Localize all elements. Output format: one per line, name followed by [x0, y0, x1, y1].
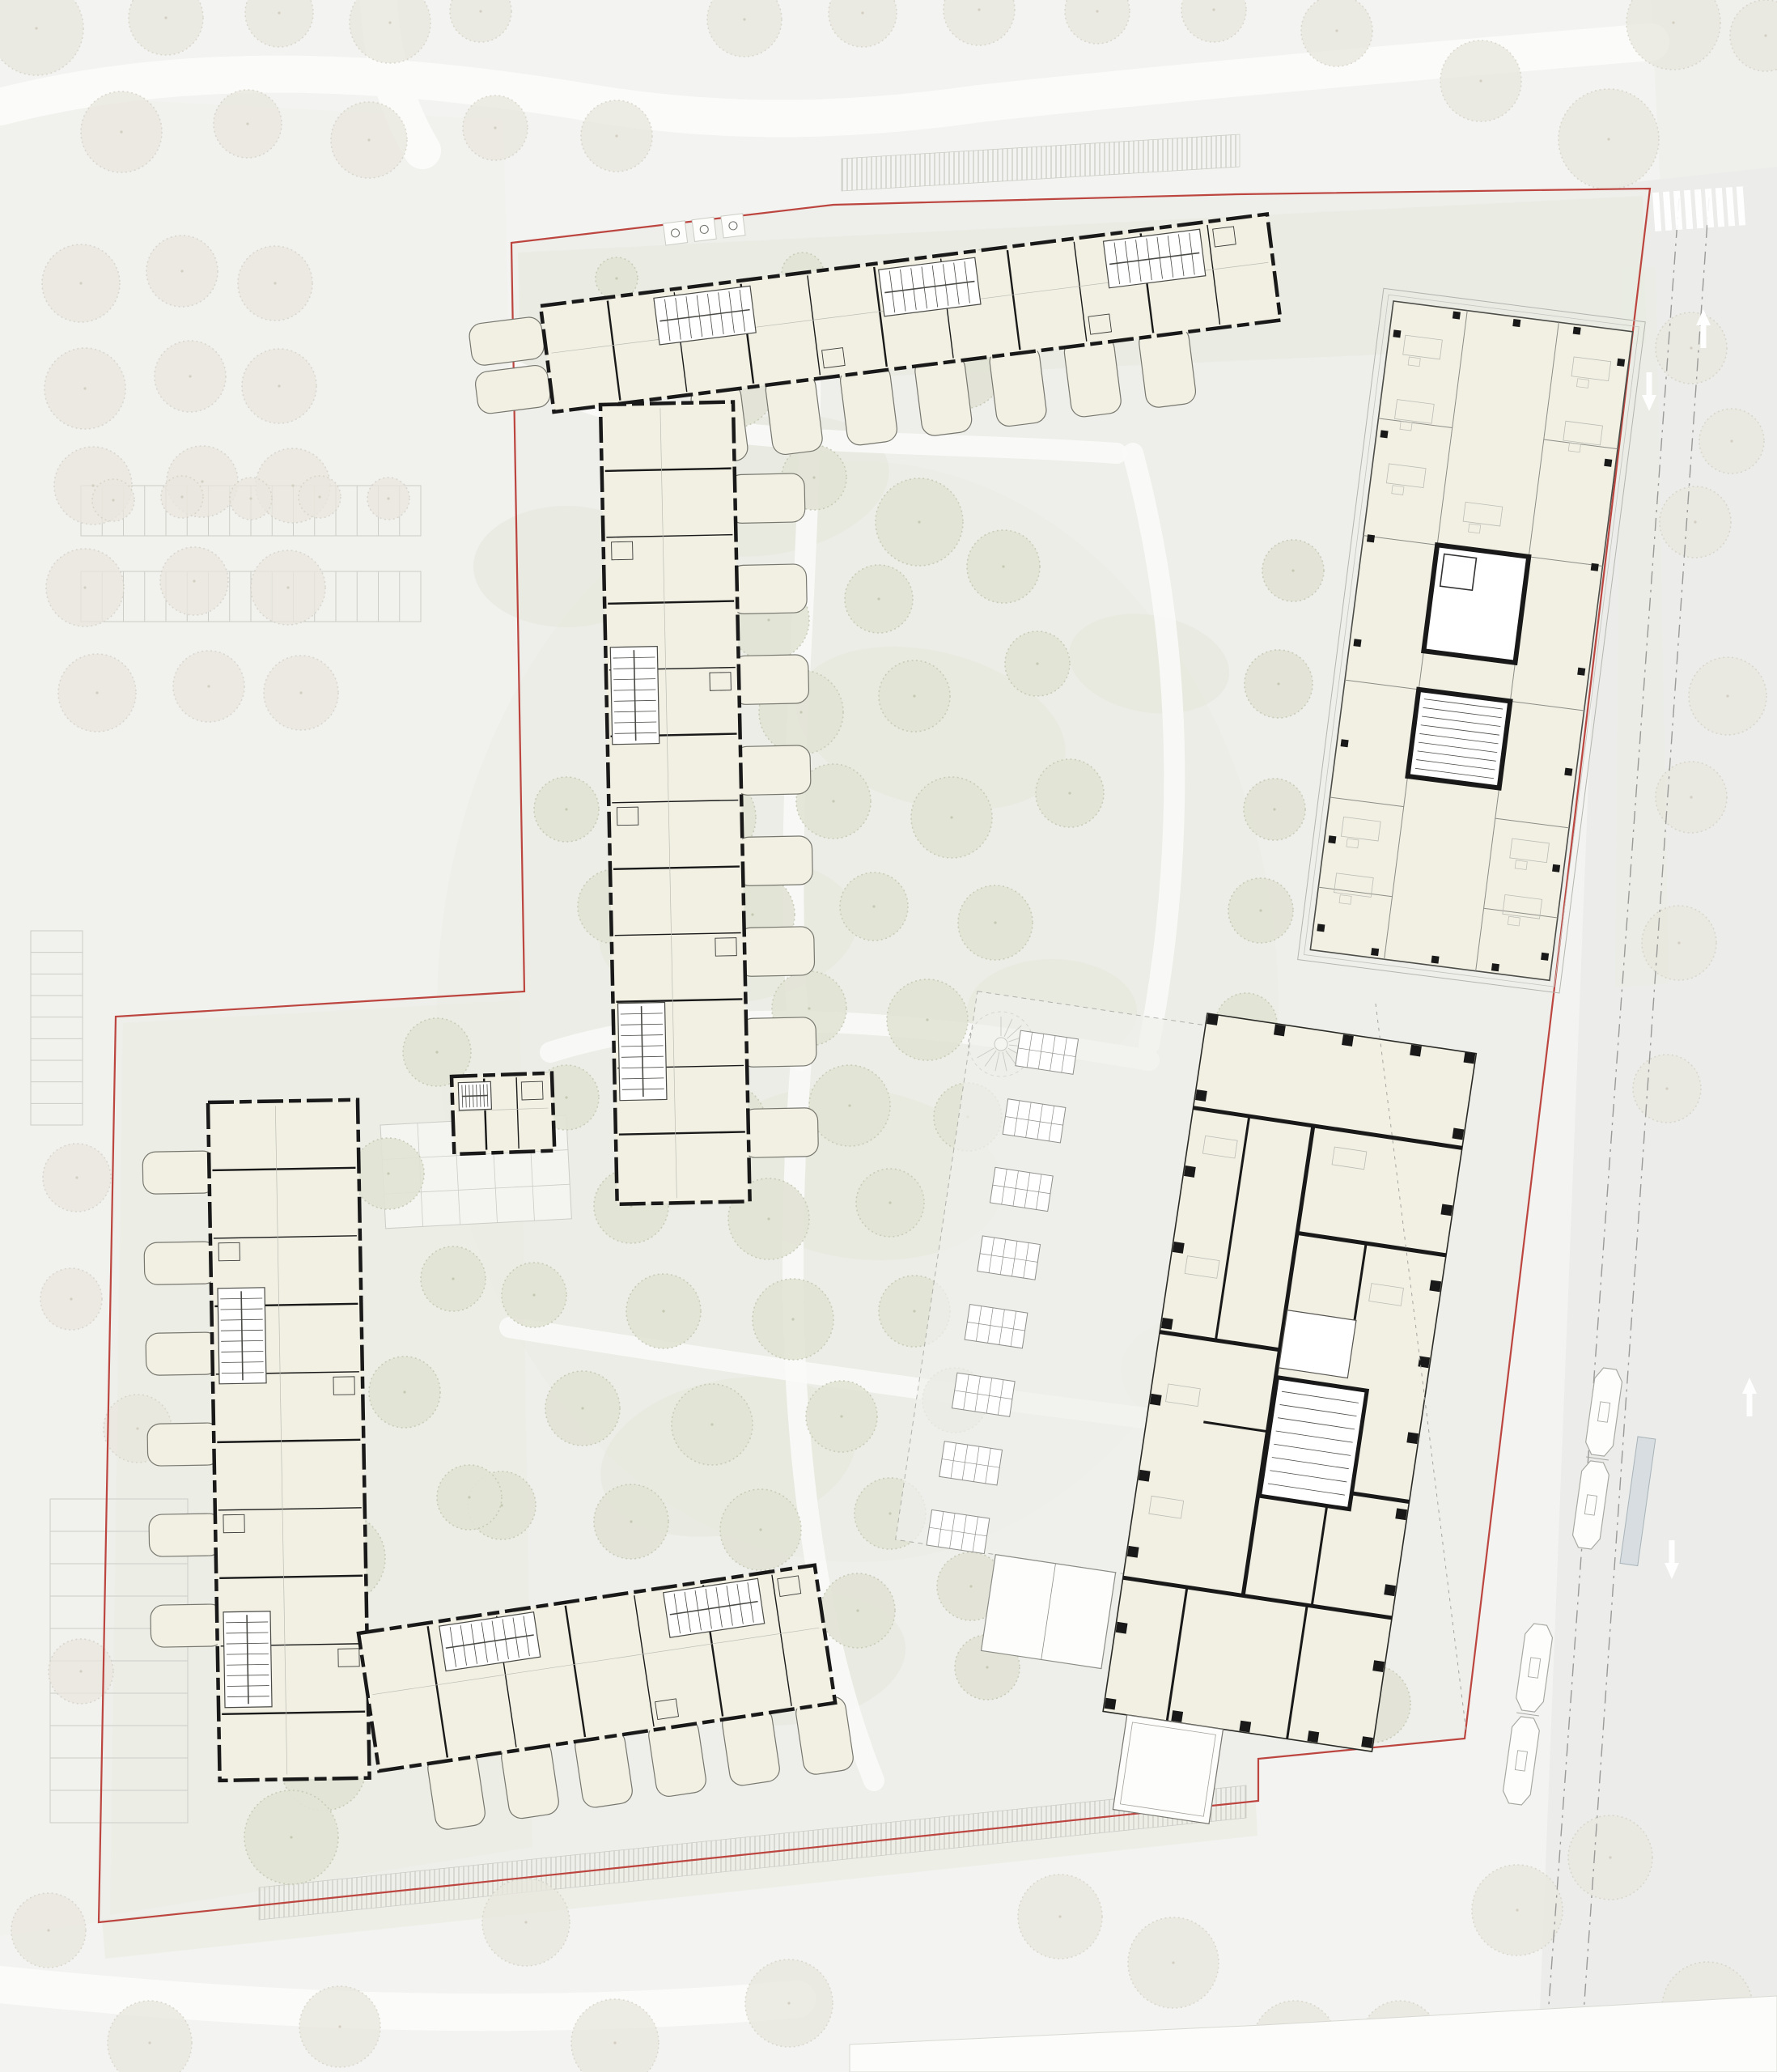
balcony	[142, 1151, 216, 1195]
column	[1367, 534, 1375, 542]
tree-trunk	[994, 921, 996, 923]
column	[1573, 327, 1581, 335]
tree-trunk	[35, 27, 37, 29]
balcony	[151, 1604, 224, 1648]
tree-trunk	[367, 138, 370, 141]
tree-trunk	[812, 476, 815, 478]
tree-trunk	[95, 691, 98, 694]
tree-trunk	[388, 21, 391, 23]
tree-trunk	[494, 126, 496, 129]
tree-trunk	[532, 1293, 535, 1296]
column	[1207, 1013, 1219, 1025]
tree-trunk	[1516, 1909, 1518, 1911]
column	[1380, 430, 1388, 438]
tree-trunk	[164, 16, 167, 19]
tree-trunk	[751, 913, 753, 915]
lightwell	[1279, 1310, 1356, 1378]
tree-trunk	[278, 384, 280, 387]
tree-trunk	[91, 484, 94, 486]
tree-trunk	[79, 1670, 82, 1672]
tree-trunk	[403, 1391, 405, 1393]
tree-trunk	[291, 484, 294, 486]
tree-trunk	[861, 11, 863, 14]
tree-trunk	[969, 1585, 972, 1587]
tree-trunk	[743, 18, 745, 20]
balcony	[147, 1423, 221, 1467]
tree-trunk	[767, 1217, 770, 1220]
tree-trunk	[286, 586, 289, 588]
column	[1161, 1318, 1173, 1330]
column	[1431, 956, 1439, 964]
tree-trunk	[70, 1297, 72, 1300]
entrance-lobby	[1113, 1715, 1223, 1824]
column	[1429, 1280, 1441, 1292]
tree-trunk	[913, 1310, 915, 1312]
column	[1371, 948, 1379, 956]
tree-trunk	[615, 134, 617, 137]
tree-trunk	[565, 808, 567, 810]
tree-trunk	[1036, 662, 1038, 664]
balcony	[732, 655, 809, 705]
column	[1406, 1432, 1419, 1444]
column	[1105, 1698, 1117, 1710]
tree-trunk	[1672, 21, 1674, 23]
tree-trunk	[581, 1407, 583, 1409]
tree-trunk	[1730, 439, 1732, 442]
tree-trunk	[75, 1176, 78, 1178]
column	[1617, 359, 1625, 367]
balcony	[468, 316, 545, 367]
tree-trunk	[926, 1018, 928, 1021]
core	[1260, 1378, 1368, 1509]
balcony	[474, 364, 552, 415]
tree-trunk	[299, 691, 302, 694]
tree-trunk	[1291, 569, 1294, 571]
tree-trunk	[180, 495, 183, 498]
column	[1139, 1470, 1151, 1482]
tree-trunk	[1058, 1915, 1061, 1917]
tree-trunk	[787, 2002, 790, 2004]
tree-trunk	[274, 282, 276, 284]
tree-trunk	[1273, 808, 1275, 810]
bike-shed	[721, 214, 745, 238]
balcony	[734, 745, 811, 796]
tree-trunk	[1259, 909, 1262, 911]
tree-trunk	[1479, 79, 1482, 82]
tree-trunk	[207, 685, 210, 687]
column	[1127, 1546, 1139, 1558]
balcony	[728, 473, 805, 524]
tree-trunk	[1726, 694, 1728, 697]
tree-trunk	[278, 11, 280, 14]
tree-trunk	[290, 1836, 292, 1838]
tree-trunk	[848, 1104, 850, 1106]
column	[1239, 1721, 1251, 1733]
column	[1395, 1508, 1407, 1520]
tree-trunk	[615, 277, 617, 279]
tree-trunk	[913, 694, 915, 697]
tree-trunk	[435, 1051, 438, 1053]
balcony	[740, 1017, 816, 1068]
tree-trunk	[189, 375, 191, 377]
balcony	[730, 564, 807, 614]
column	[1452, 1128, 1464, 1140]
tree-trunk	[180, 270, 183, 272]
tree-trunk	[468, 1496, 470, 1498]
tree-trunk	[1694, 520, 1696, 523]
tree-trunk	[338, 2025, 341, 2027]
column	[1410, 1045, 1422, 1057]
column	[1453, 312, 1461, 320]
tree-trunk	[1609, 1856, 1611, 1858]
column	[1564, 768, 1572, 776]
tree-trunk	[565, 1096, 567, 1098]
tree-trunk	[918, 520, 920, 523]
tree-trunk	[1690, 796, 1692, 798]
bike-shed	[692, 217, 716, 241]
crosswalk	[1652, 186, 1745, 231]
column	[1317, 923, 1325, 932]
tree-trunk	[872, 905, 875, 907]
column	[1341, 739, 1349, 747]
tree-trunk	[136, 1427, 138, 1429]
tree-trunk	[808, 1007, 810, 1009]
column	[1274, 1025, 1286, 1037]
tree-trunk	[1212, 8, 1215, 11]
tree-trunk	[767, 618, 770, 621]
tree-trunk	[1665, 1087, 1668, 1089]
balcony	[149, 1514, 223, 1557]
tree-trunk	[112, 499, 114, 501]
tree-trunk	[710, 1423, 713, 1425]
tree-trunk	[387, 497, 389, 499]
column	[1195, 1089, 1207, 1102]
tree-trunk	[79, 282, 82, 284]
tree-trunk	[888, 1201, 891, 1204]
column	[1384, 1584, 1396, 1596]
tree-trunk	[832, 800, 834, 802]
balcony	[738, 927, 815, 977]
column	[1577, 668, 1585, 676]
column	[1512, 319, 1520, 327]
column	[1491, 963, 1499, 971]
balcony	[144, 1242, 218, 1285]
tree-trunk	[246, 122, 248, 125]
tree-trunk	[1002, 565, 1004, 567]
tree-trunk	[1068, 792, 1071, 794]
tree-trunk	[613, 2041, 616, 2044]
tree-trunk	[1690, 346, 1692, 349]
tree-trunk	[1172, 1961, 1174, 1964]
tree-trunk	[1607, 138, 1609, 140]
column	[1604, 459, 1612, 467]
tree-trunk	[120, 130, 122, 133]
tree-trunk	[83, 387, 86, 389]
building-small-block	[452, 1073, 554, 1154]
tree-trunk	[950, 816, 952, 818]
tree-trunk	[662, 1310, 664, 1312]
tree-trunk	[759, 1528, 761, 1531]
tree-trunk	[479, 10, 481, 12]
tree-trunk	[524, 1921, 527, 1923]
column	[1116, 1622, 1128, 1634]
column	[1307, 1730, 1319, 1743]
tree-trunk	[249, 497, 252, 499]
tree-trunk	[387, 1172, 389, 1174]
tree-trunk	[840, 1415, 842, 1417]
column	[1342, 1034, 1354, 1047]
tree-trunk	[877, 597, 880, 600]
column	[1184, 1165, 1196, 1178]
column	[1361, 1736, 1373, 1748]
tree-trunk	[1277, 682, 1279, 685]
site-plan-drawing	[0, 0, 1777, 2072]
balcony	[741, 1108, 818, 1158]
tree-trunk	[148, 2041, 151, 2044]
column	[1328, 835, 1336, 843]
column	[1591, 563, 1599, 571]
column	[1171, 1710, 1183, 1722]
bike-shed	[663, 221, 687, 245]
column	[1372, 1660, 1385, 1672]
tree-trunk	[856, 1609, 859, 1611]
tree-trunk	[201, 480, 203, 482]
tree-trunk	[630, 1520, 632, 1522]
tree-trunk	[1096, 10, 1098, 12]
tree-trunk	[978, 8, 980, 11]
column	[1440, 1204, 1453, 1216]
column	[1173, 1242, 1185, 1254]
site-plan-canvas	[0, 0, 1777, 2072]
balcony	[736, 836, 812, 886]
column	[1464, 1052, 1476, 1064]
tree-trunk	[452, 1277, 454, 1280]
column	[1353, 639, 1361, 647]
tree-trunk	[799, 711, 802, 713]
tree-trunk	[318, 495, 320, 498]
tree-trunk	[986, 1666, 988, 1668]
balcony	[146, 1332, 219, 1376]
tree-trunk	[1764, 34, 1766, 36]
tree-trunk	[47, 1929, 49, 1931]
tree-trunk	[888, 1512, 891, 1514]
tree-trunk	[193, 580, 195, 582]
column	[1150, 1394, 1162, 1406]
tree-trunk	[791, 1318, 794, 1320]
tree-trunk	[83, 586, 86, 588]
column	[1552, 864, 1560, 873]
column	[1541, 953, 1549, 961]
tree-trunk	[1677, 941, 1680, 944]
column	[1393, 329, 1401, 338]
tree-trunk	[1335, 29, 1338, 32]
